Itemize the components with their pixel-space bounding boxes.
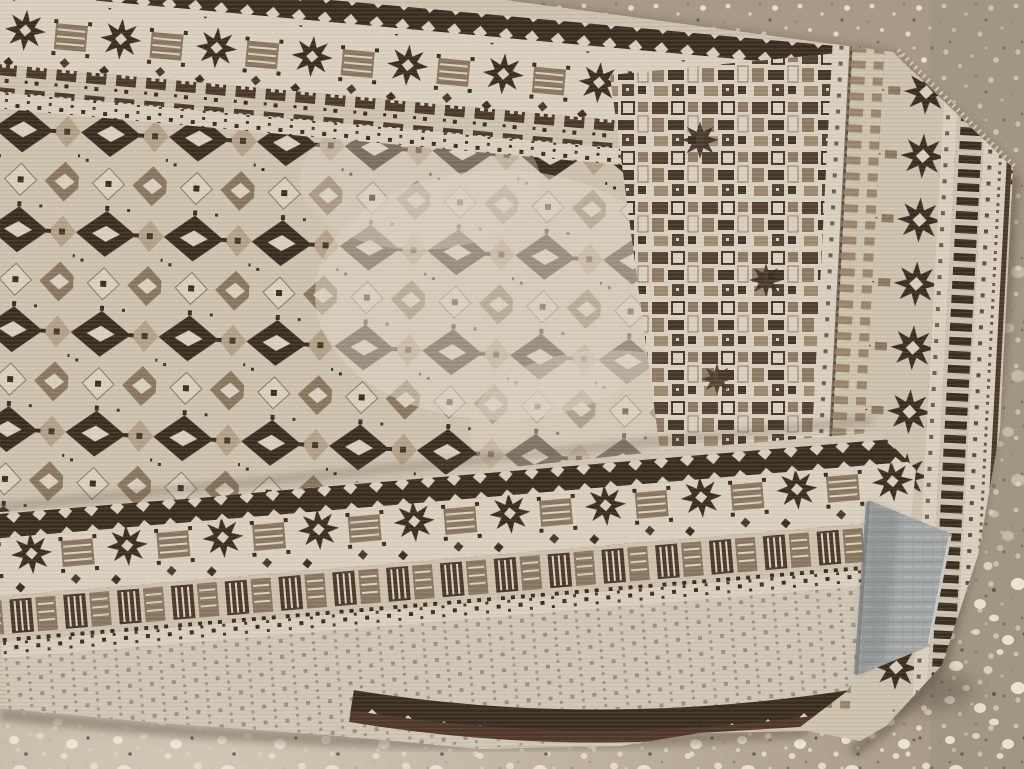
- rug-photograph: Vintage tribal runner rug on terrazzo fl…: [0, 0, 1024, 769]
- photo-stage: Vintage tribal runner rug on terrazzo fl…: [0, 0, 1024, 769]
